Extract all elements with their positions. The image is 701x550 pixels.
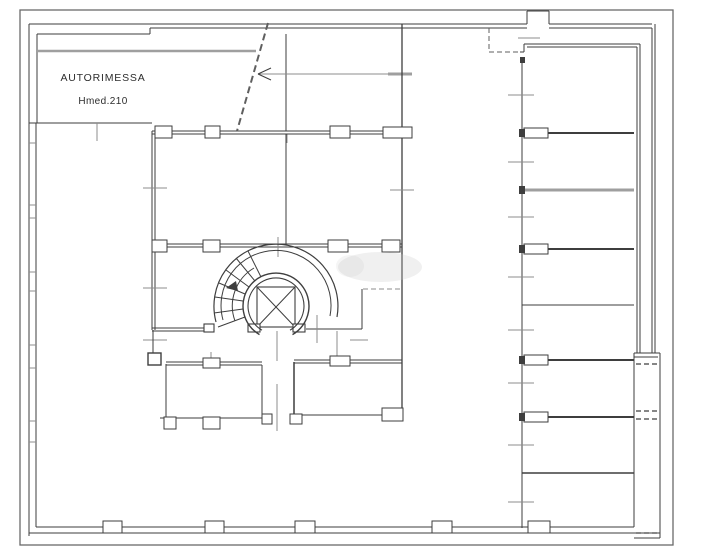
garage-height-label: Hmed.210 xyxy=(40,96,166,107)
garage-room-label: AUTORIMESSA xyxy=(40,72,166,84)
plan-dashed xyxy=(237,23,658,533)
plan-rects xyxy=(103,57,550,533)
drawing-border xyxy=(20,10,673,545)
floorplan-page: AUTORIMESSA Hmed.210 xyxy=(0,0,701,550)
stair-direction-arrow xyxy=(226,281,238,291)
watermark-smudge xyxy=(336,252,422,282)
